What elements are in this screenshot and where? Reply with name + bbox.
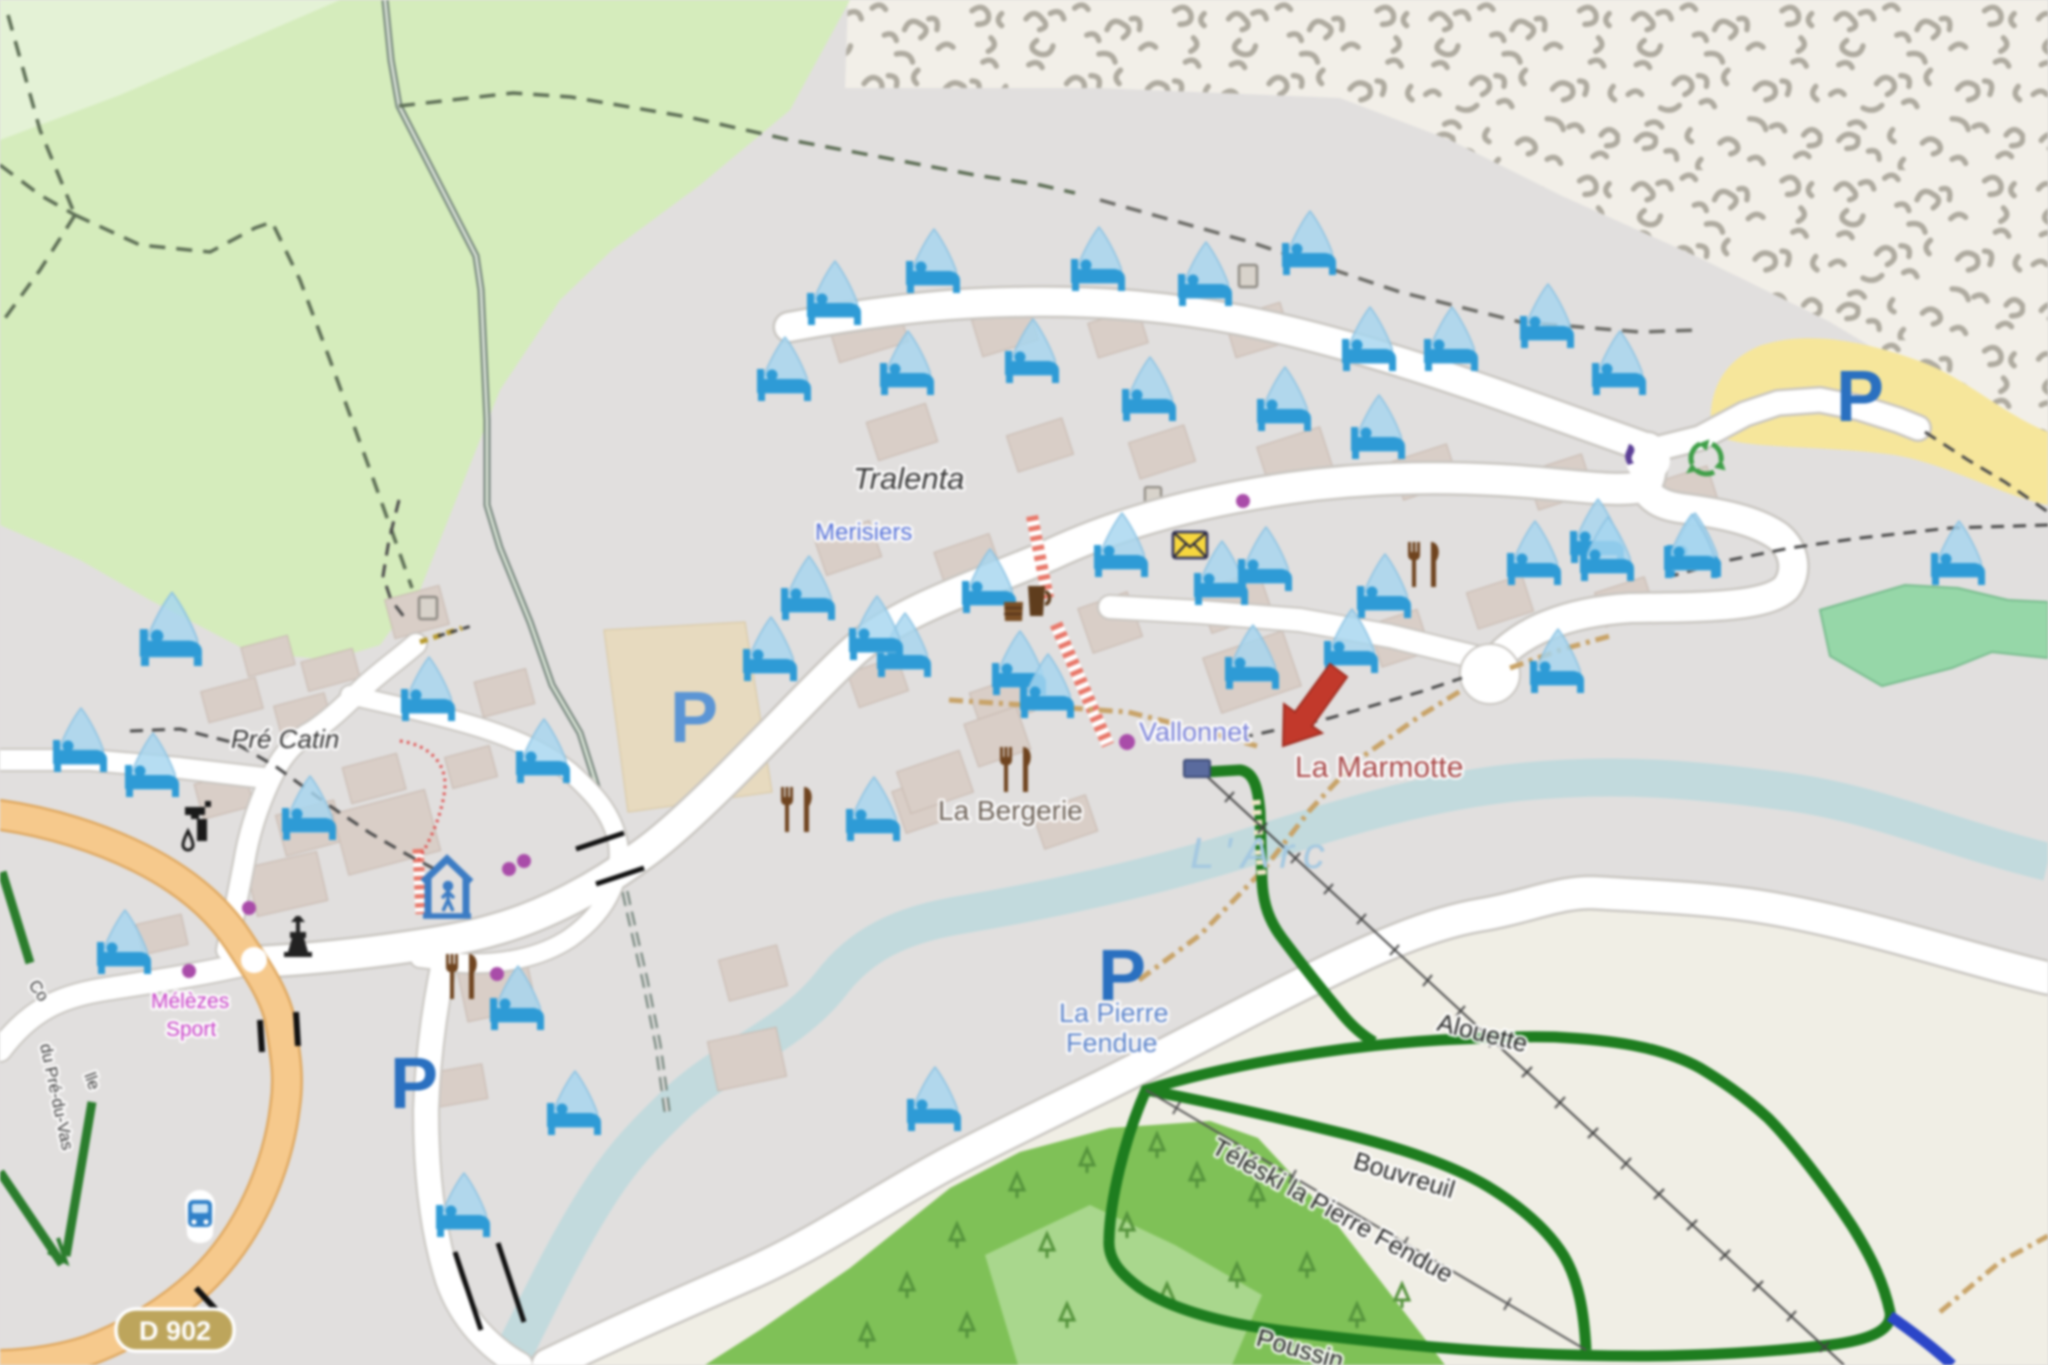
svg-text:P: P [1836, 357, 1884, 437]
svg-text:Pré Catin: Pré Catin [231, 724, 339, 754]
svg-text:Sport: Sport [166, 1018, 216, 1041]
svg-text:Vallonnet: Vallonnet [1139, 717, 1250, 747]
svg-text:Fendue: Fendue [1066, 1028, 1158, 1058]
svg-text:Mélèzes: Mélèzes [151, 990, 229, 1013]
svg-text:La Bergerie: La Bergerie [938, 795, 1083, 826]
svg-text:P: P [390, 1044, 438, 1124]
svg-text:La Marmotte: La Marmotte [1295, 751, 1463, 784]
svg-text:P: P [670, 678, 718, 758]
svg-text:D 902: D 902 [139, 1316, 211, 1346]
svg-text:Tralenta: Tralenta [853, 461, 964, 496]
svg-text:Merisiers: Merisiers [815, 519, 912, 546]
svg-text:La Pierre: La Pierre [1059, 998, 1169, 1028]
svg-text:L'Arc: L'Arc [1190, 829, 1334, 878]
